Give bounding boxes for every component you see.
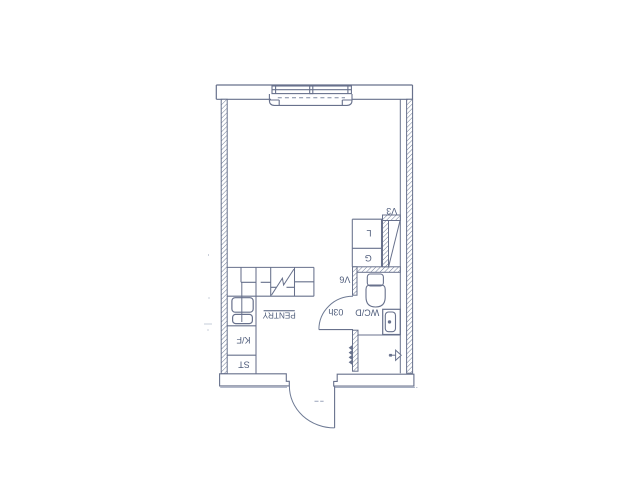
svg-text:L: L xyxy=(366,228,371,238)
svg-text:G: G xyxy=(365,253,372,263)
svg-text:V6: V6 xyxy=(339,275,350,285)
svg-text:PENTRY: PENTRY xyxy=(262,310,296,319)
svg-text:ST: ST xyxy=(238,359,250,369)
svg-text:WC/D: WC/D xyxy=(355,307,379,317)
svg-text:03h: 03h xyxy=(328,307,343,317)
svg-text:K/F: K/F xyxy=(236,335,251,345)
svg-text:V3: V3 xyxy=(386,206,397,216)
